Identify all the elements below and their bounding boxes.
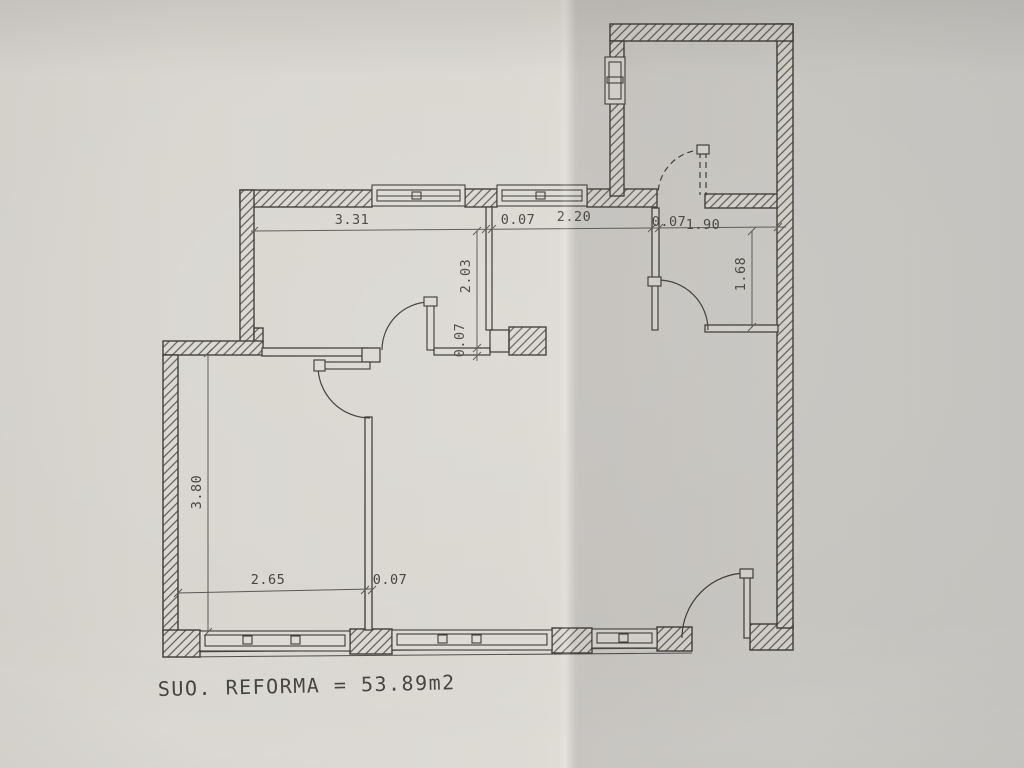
- dim-wall-v1: 0.07: [501, 212, 536, 228]
- dim-wall-v2: 0.07: [373, 572, 408, 588]
- dim-room2-width: 2.65: [251, 572, 286, 588]
- dim-room2-depth: 3.80: [189, 475, 205, 510]
- door-room3: [648, 277, 708, 330]
- dim-room3-depth: 1.68: [733, 257, 749, 292]
- door-balcony-dashed: [658, 145, 709, 195]
- door-room1: [382, 297, 437, 350]
- interior-walls: [262, 207, 778, 630]
- door-room2: [314, 360, 370, 418]
- exterior-walls: [163, 24, 793, 657]
- dim-wall-h1: 0.07: [452, 323, 468, 358]
- dim-room1-width: 3.31: [335, 212, 370, 228]
- shaft-box: [490, 330, 509, 352]
- floorplan-drawing: 3.31 0.07 2.20 0.07 1.90 2.03 0.07 1.68 …: [0, 0, 1024, 768]
- dim-hall-width: 2.20: [557, 209, 592, 225]
- dim-wall-v3: 0.07: [652, 214, 687, 230]
- dim-room3-width: 1.90: [686, 217, 721, 233]
- floorplan-photo: 3.31 0.07 2.20 0.07 1.90 2.03 0.07 1.68 …: [0, 0, 1024, 768]
- dim-room1-depth: 2.03: [458, 259, 474, 294]
- plan-caption: SUO. REFORMA = 53.89m2: [158, 670, 456, 701]
- dimension-labels: 3.31 0.07 2.20 0.07 1.90 2.03 0.07 1.68 …: [189, 209, 749, 588]
